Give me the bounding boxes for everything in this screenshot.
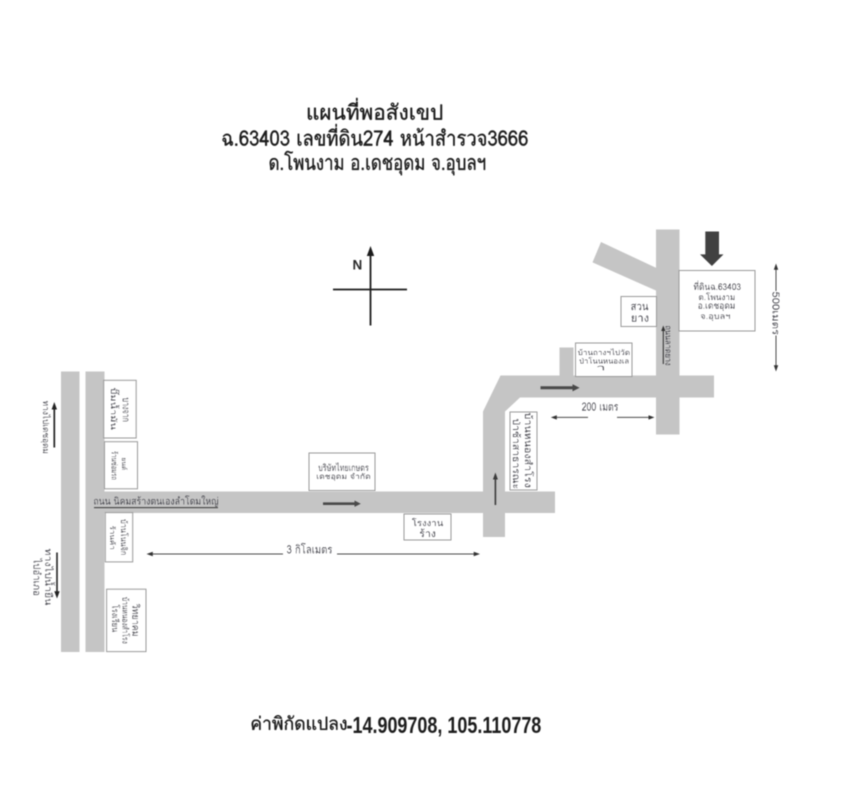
svg-text:N: N bbox=[353, 258, 363, 273]
svg-text:-14.909708, 105.110778: -14.909708, 105.110778 bbox=[347, 712, 542, 738]
